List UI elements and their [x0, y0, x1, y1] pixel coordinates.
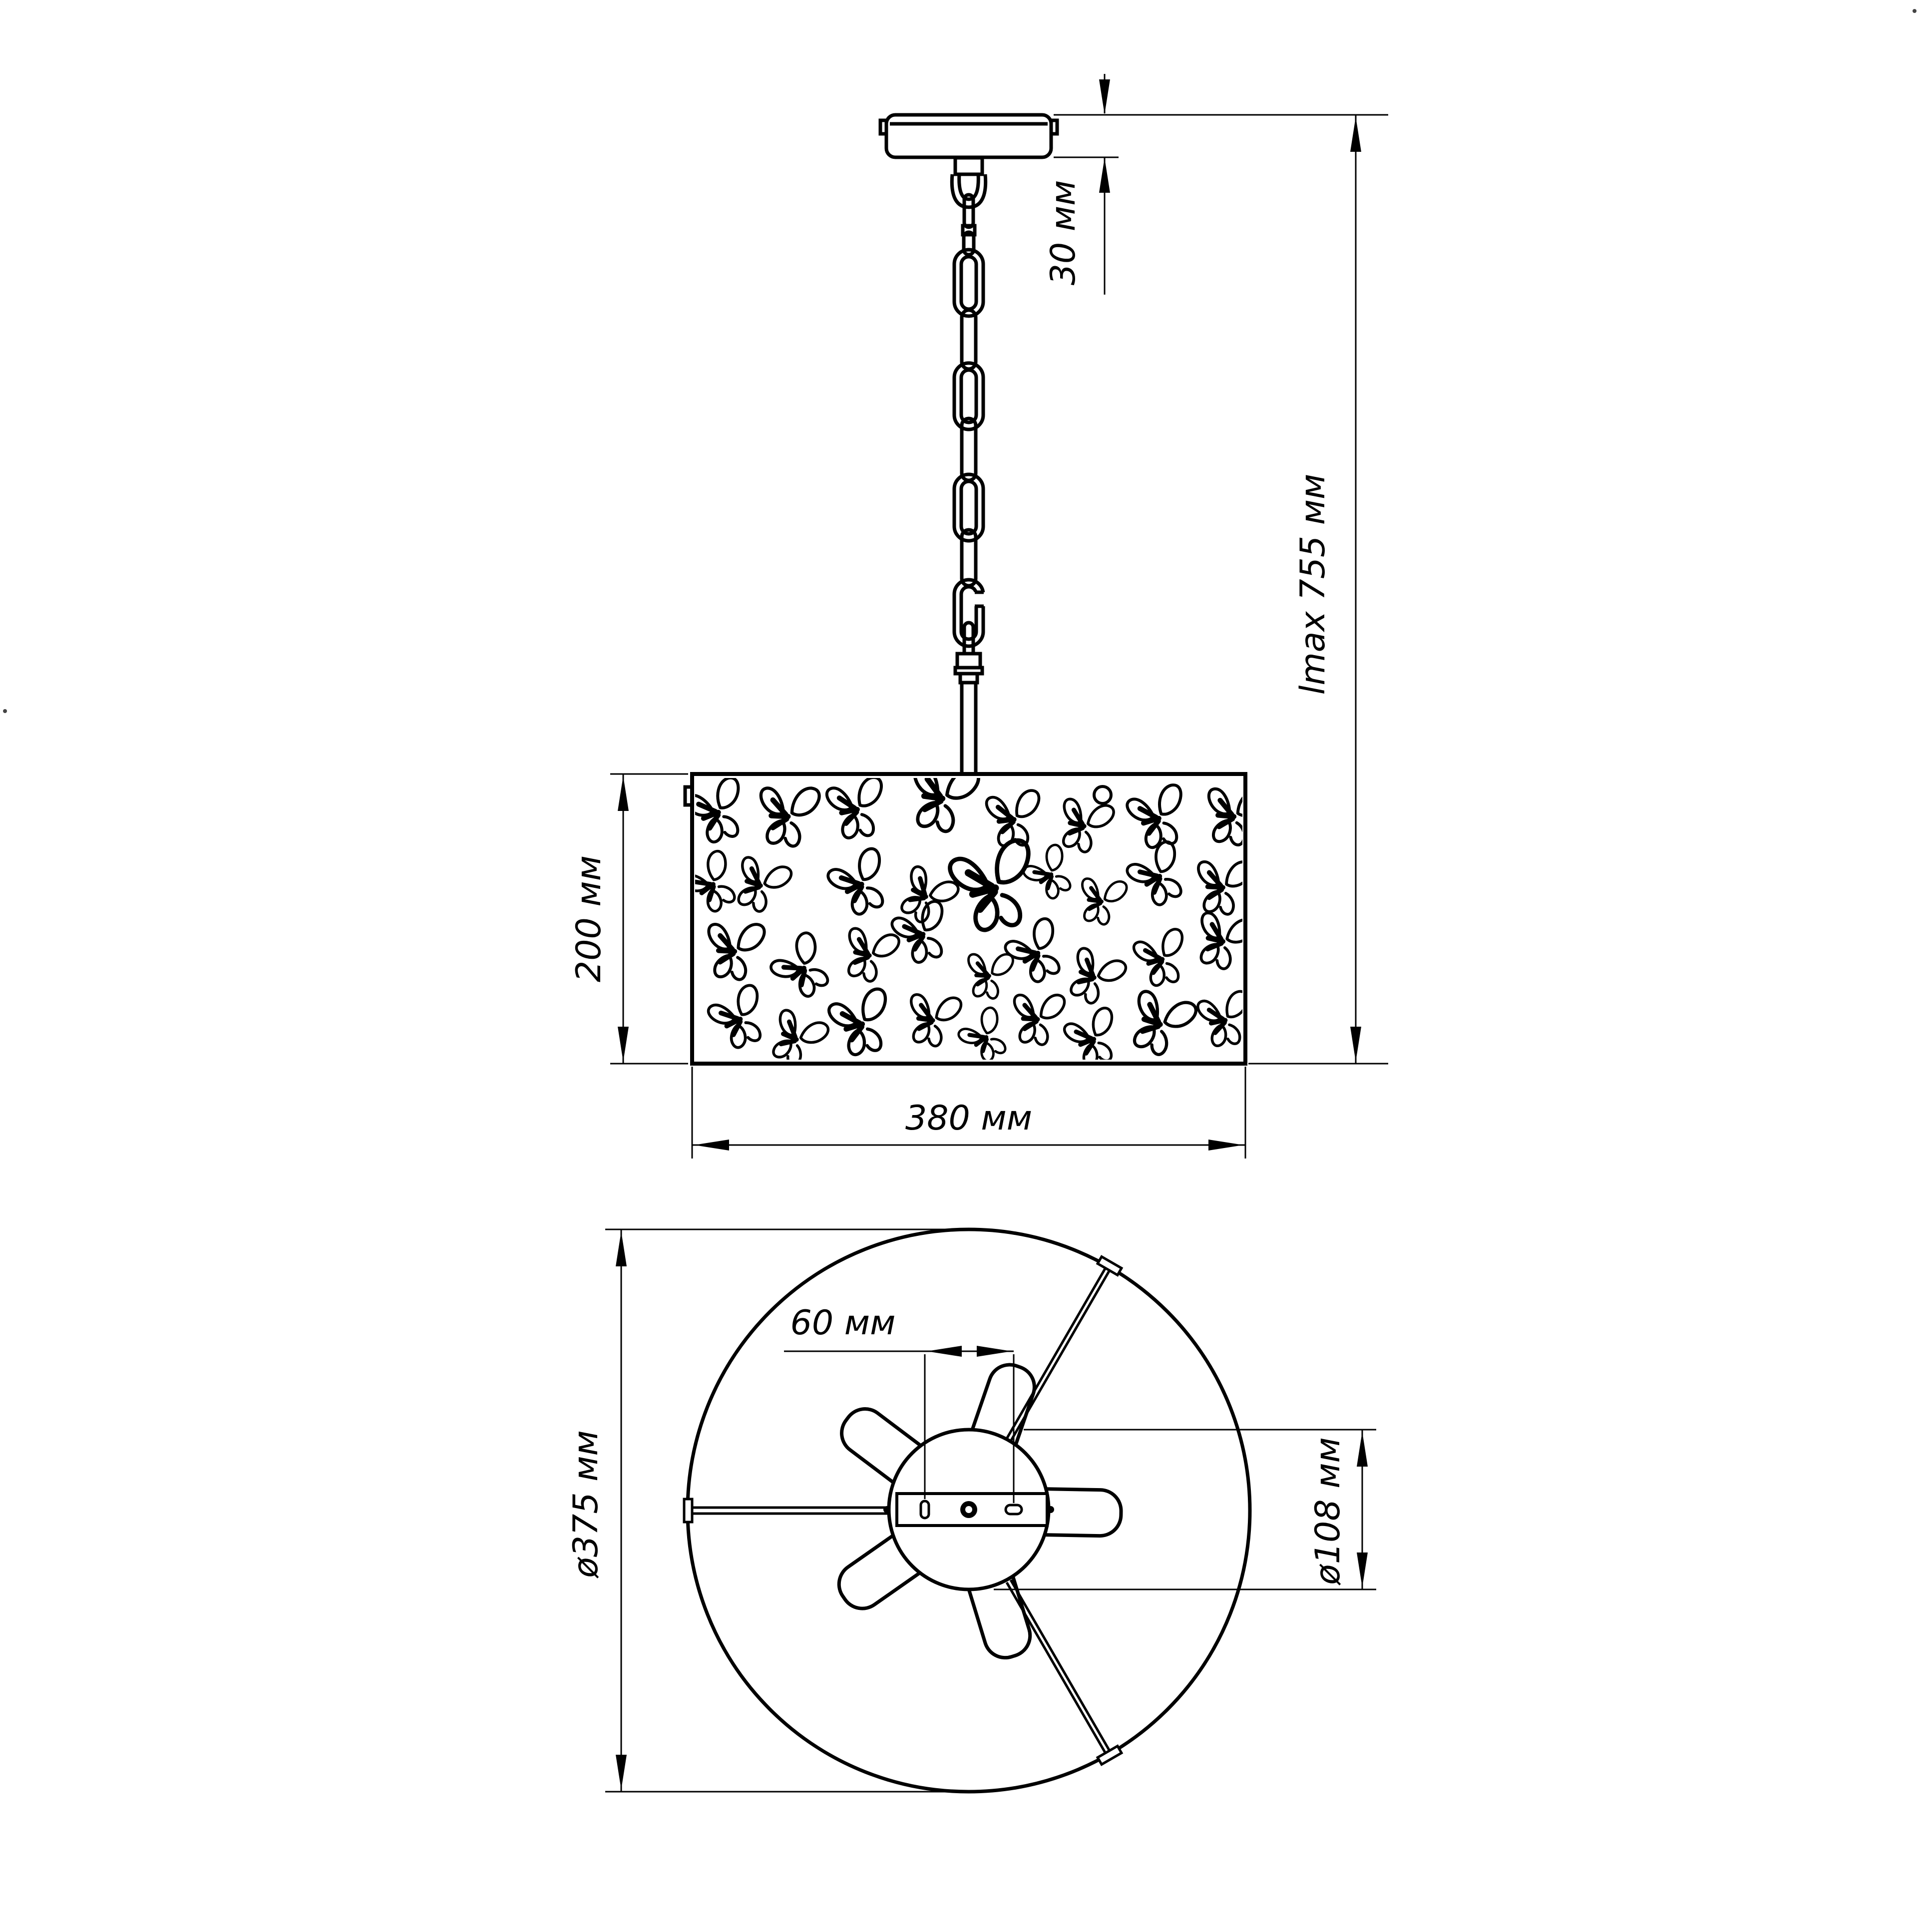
pendant-lamp-technical-drawing: 30 мм lmax 755 мм 200 мм 380 мм	[0, 0, 1932, 1932]
bottom-view: 60 мм ø375 мм ø108 мм	[566, 1229, 1376, 1792]
label-max-length: lmax 755 мм	[1293, 474, 1333, 695]
dimension-canopy-height: 30 мм	[1044, 74, 1388, 295]
label-shade-width: 380 мм	[905, 1099, 1032, 1138]
hub	[883, 1430, 1054, 1589]
label-socket-offset: 60 мм	[790, 1303, 896, 1343]
dimension-max-length: lmax 755 мм	[1248, 115, 1388, 1064]
socket-hole-center	[965, 1506, 972, 1513]
suspension-chain	[954, 195, 987, 658]
registration-dot-top-right	[1913, 9, 1917, 13]
label-canopy-height: 30 мм	[1044, 180, 1083, 286]
chain-shackle	[952, 158, 985, 207]
label-hub-diameter: ø108 мм	[1308, 1437, 1348, 1585]
drawing-sheet: 30 мм lmax 755 мм 200 мм 380 мм	[0, 0, 1932, 1932]
rod-ferrule	[955, 654, 982, 776]
dimension-shade-width: 380 мм	[692, 1067, 1245, 1159]
ceiling-canopy	[880, 115, 1057, 157]
drum-shade	[677, 756, 1265, 1073]
side-view: 30 мм lmax 755 мм 200 мм 380 мм	[569, 74, 1388, 1159]
label-outer-diameter: ø375 мм	[566, 1430, 606, 1578]
dimension-shade-height: 200 мм	[569, 774, 688, 1064]
label-shade-height: 200 мм	[569, 855, 609, 982]
arm-pin-left	[883, 1506, 890, 1513]
registration-dot-left	[3, 709, 7, 713]
